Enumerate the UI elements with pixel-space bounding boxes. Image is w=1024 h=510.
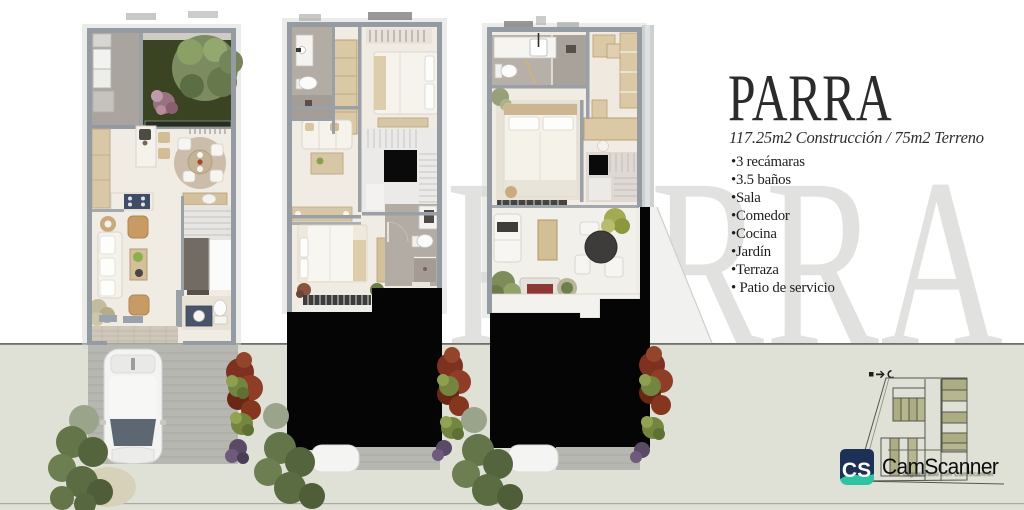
svg-text:CS: CS [842,459,871,482]
